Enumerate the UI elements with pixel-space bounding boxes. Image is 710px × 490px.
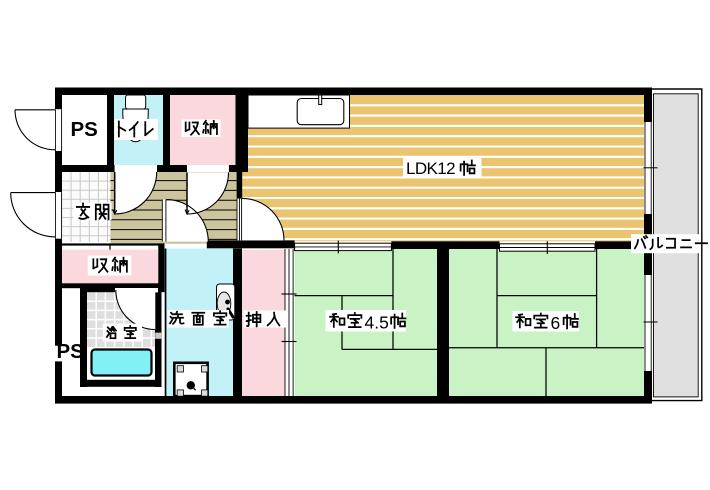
- svg-text:PS: PS: [71, 118, 98, 141]
- svg-text:PS: PS: [57, 340, 84, 363]
- svg-text:LDK12: LDK12: [406, 159, 455, 178]
- svg-text:6: 6: [551, 313, 561, 333]
- svg-text:4.5: 4.5: [365, 313, 389, 333]
